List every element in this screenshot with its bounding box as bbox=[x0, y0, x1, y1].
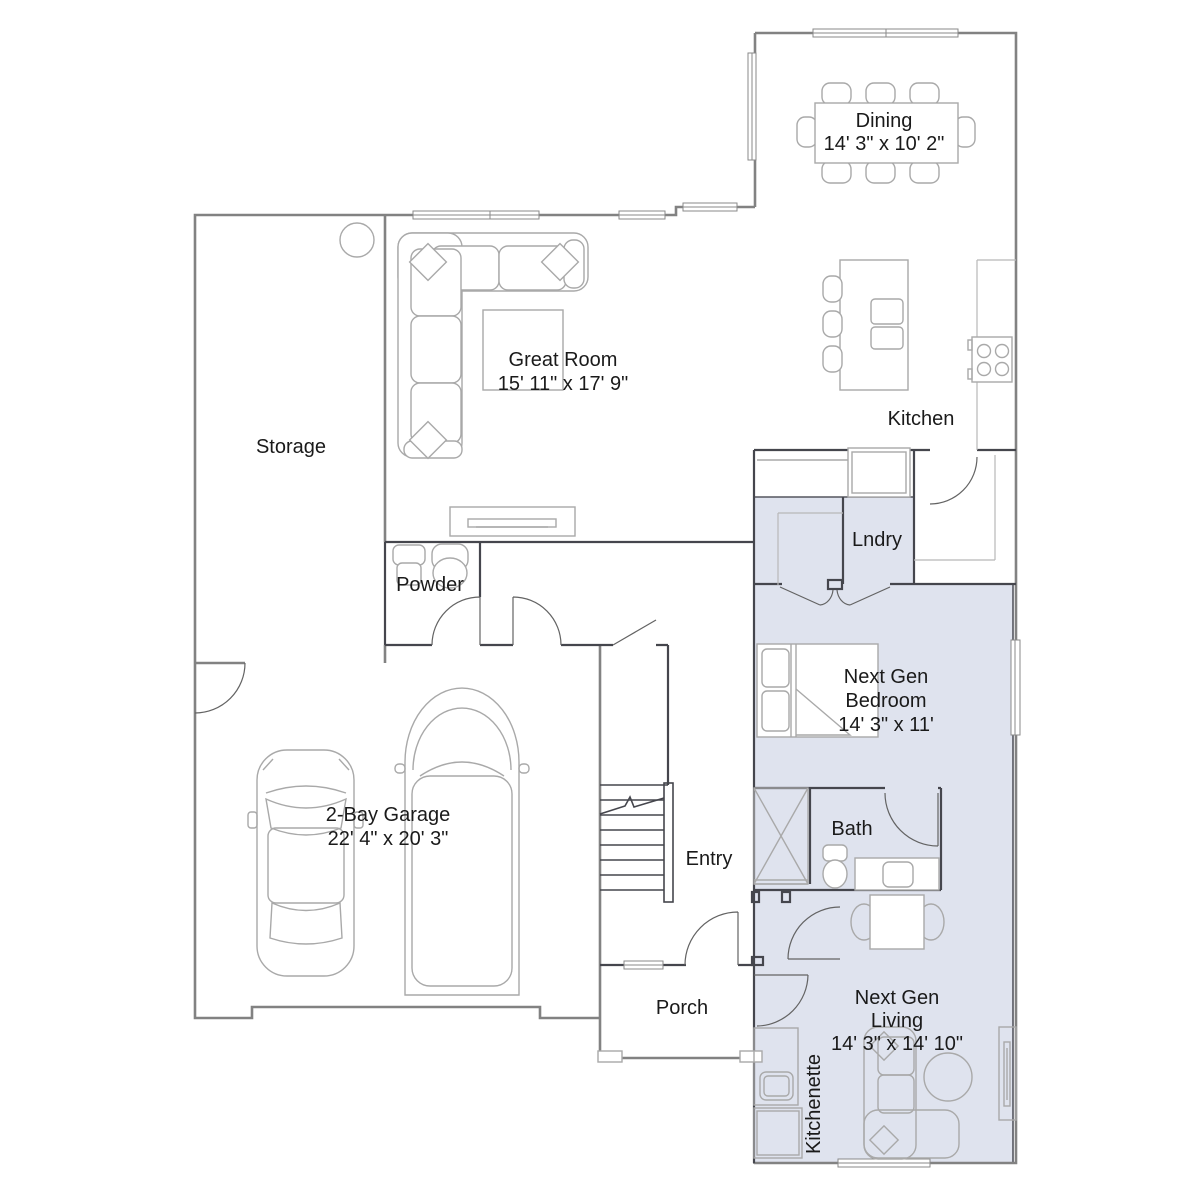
label-bedroom-1: Next Gen bbox=[844, 666, 928, 688]
round-side-table-icon bbox=[340, 223, 374, 257]
washer-dryer-icon bbox=[757, 448, 910, 497]
bath-vanity-icon bbox=[855, 858, 939, 890]
label-bedroom-dims: 14' 3" x 11' bbox=[838, 714, 934, 736]
label-living-2: Living bbox=[871, 1010, 923, 1032]
label-living-dims: 14' 3" x 14' 10" bbox=[831, 1033, 963, 1055]
label-garage: 2-Bay Garage bbox=[326, 804, 451, 826]
bath-toilet-icon bbox=[823, 845, 847, 888]
label-bedroom-2: Bedroom bbox=[845, 690, 926, 712]
label-powder: Powder bbox=[396, 574, 464, 596]
label-entry: Entry bbox=[686, 848, 733, 870]
label-porch: Porch bbox=[656, 997, 708, 1019]
next-gen-suite-floor bbox=[754, 497, 1013, 1163]
tv-console-icon bbox=[450, 507, 575, 536]
label-dining: Dining bbox=[856, 110, 913, 132]
porch-slab bbox=[598, 1051, 762, 1062]
stove-icon bbox=[968, 337, 1012, 382]
kitchen-island-icon bbox=[840, 260, 908, 390]
powder-door bbox=[432, 597, 480, 645]
great-room-sectional-sofa-icon bbox=[398, 233, 588, 458]
sedan-car-icon bbox=[248, 750, 363, 976]
label-garage-dims: 22' 4" x 20' 3" bbox=[328, 828, 449, 850]
label-bath: Bath bbox=[831, 818, 872, 840]
stairs bbox=[600, 783, 673, 902]
kitchen-corridor-door bbox=[930, 457, 977, 504]
label-great-room-dims: 15' 11" x 17' 9" bbox=[498, 373, 628, 395]
storage-door-arc bbox=[195, 663, 245, 713]
label-storage: Storage bbox=[256, 436, 326, 458]
porch-entry-door bbox=[685, 912, 738, 965]
hall-door bbox=[513, 597, 561, 645]
great-room-door-leaf bbox=[613, 620, 656, 645]
label-kitchen: Kitchen bbox=[888, 408, 955, 430]
label-laundry: Lndry bbox=[852, 529, 902, 551]
powder-sink-icon bbox=[393, 545, 425, 565]
label-dining-dims: 14' 3" x 10' 2" bbox=[824, 133, 945, 155]
label-kitchenette: Kitchenette bbox=[803, 1054, 825, 1154]
label-living-1: Next Gen bbox=[855, 987, 939, 1009]
floor-plan-svg: Dining 14' 3" x 10' 2" Great Room 15' 11… bbox=[0, 0, 1198, 1198]
floor-plan: Dining 14' 3" x 10' 2" Great Room 15' 11… bbox=[0, 0, 1198, 1198]
label-great-room: Great Room bbox=[509, 349, 618, 371]
